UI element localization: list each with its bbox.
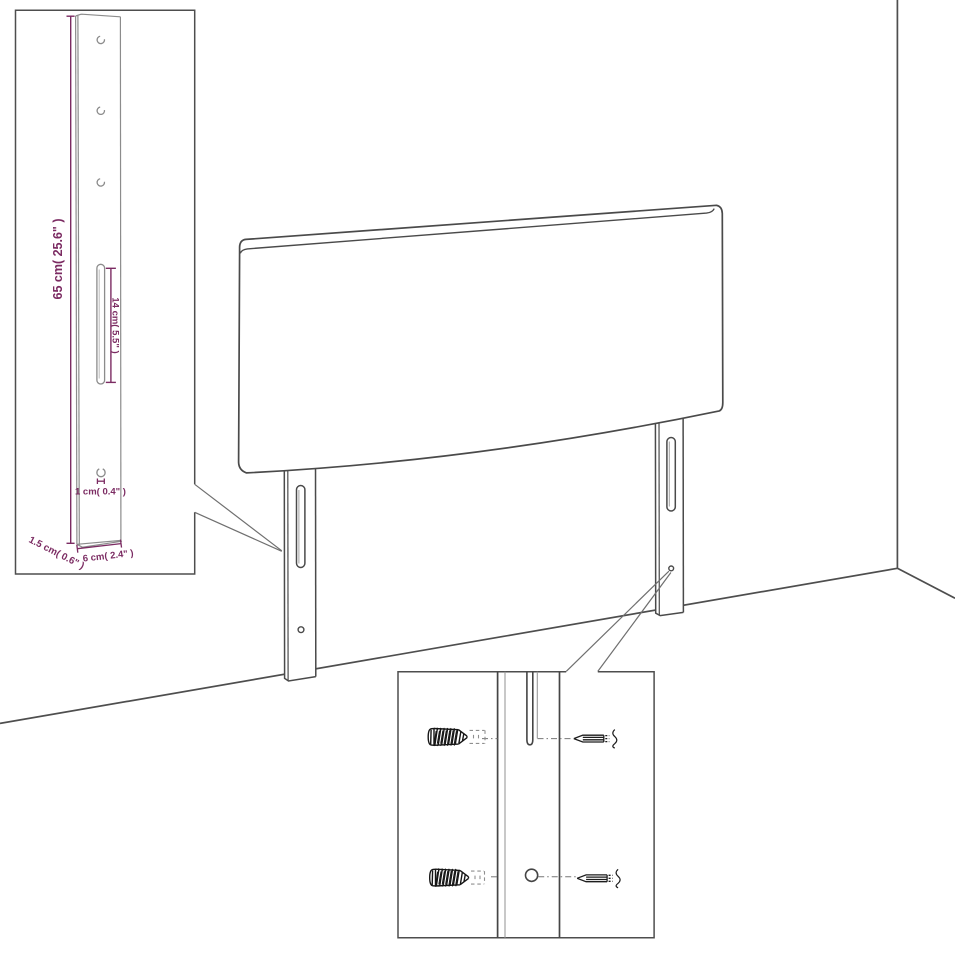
svg-text:14 cm( 5.5" ): 14 cm( 5.5" ) — [109, 297, 120, 353]
svg-text:1 cm( 0.4" ): 1 cm( 0.4" ) — [75, 486, 126, 497]
svg-text:65 cm( 25.6" ): 65 cm( 25.6" ) — [51, 219, 65, 300]
